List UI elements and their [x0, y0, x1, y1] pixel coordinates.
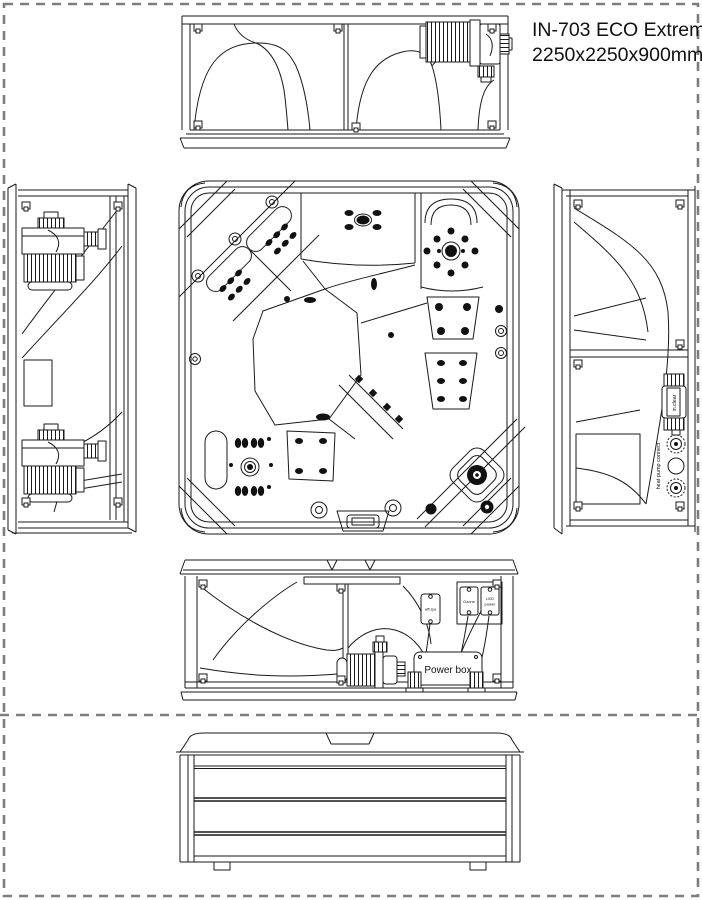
led-label-line1: LED: [486, 596, 494, 601]
pump-icon-upper: [22, 212, 106, 290]
rim-fittings: [190, 305, 507, 365]
control-panel: [311, 500, 494, 531]
top-bench: [301, 193, 415, 290]
headrest: [243, 203, 295, 255]
view-front-elevation: Power box wifi spa Ozone LED power: [177, 552, 521, 702]
rim: [179, 181, 519, 534]
view-left-elevation: [6, 182, 141, 537]
corner-lounge: [179, 181, 319, 321]
cabinet-foot: [214, 862, 230, 870]
led-label-line2: power: [485, 602, 497, 607]
view-plan: [177, 179, 521, 536]
wifi-module: wifi spa: [421, 594, 440, 624]
footwell: [253, 261, 427, 439]
product-name: IN-703 ECO Extreme: [532, 18, 702, 43]
wifi-module-label: wifi spa: [425, 608, 436, 612]
cover-lip: [176, 733, 524, 755]
title-block: IN-703 ECO Extreme 2250x2250x900mm: [532, 18, 702, 69]
jet-cluster: [218, 268, 252, 302]
power-box-label: Power box: [424, 665, 471, 676]
led-power-module: LED power: [481, 587, 499, 615]
power-box: Power box: [406, 652, 485, 692]
view-cabinet-side: [174, 730, 526, 878]
shell-contours: [574, 208, 669, 504]
ozone-label: Ozone: [463, 599, 476, 604]
spa-technical-drawing-page: IN-703 ECO Extreme 2250x2250x900mm: [0, 0, 702, 900]
jet-cluster: [264, 222, 298, 256]
bottom-left-seat: [205, 431, 335, 496]
ozone-module: Ozone: [460, 587, 478, 615]
inclear-label: in.clear: [672, 394, 678, 411]
product-dimensions: 2250x2250x900mm: [532, 43, 702, 68]
speaker-icon: [311, 502, 327, 518]
circulation-pump-icon: [337, 636, 405, 688]
headrest: [203, 243, 255, 295]
heat-pump-connect-label: heat pump connect: [656, 442, 662, 489]
bottom-center-seat: [425, 353, 477, 409]
jet-cluster: [424, 228, 479, 277]
cabinet-foot: [470, 862, 486, 870]
speaker-icon: [385, 500, 401, 516]
view-rear-elevation: [178, 10, 512, 148]
air-jet-bench: [339, 375, 403, 439]
heat-pump-ports: heat pump connect: [656, 435, 685, 497]
headrest: [205, 431, 227, 489]
inclear-unit: in.clear: [662, 374, 686, 435]
rim-lip: [180, 560, 518, 584]
cabinet-panels: [180, 755, 520, 870]
cabinet-frame: [554, 184, 695, 534]
corner-seat: [421, 193, 483, 339]
view-right-elevation: in.clear heat pump connect: [550, 182, 700, 537]
